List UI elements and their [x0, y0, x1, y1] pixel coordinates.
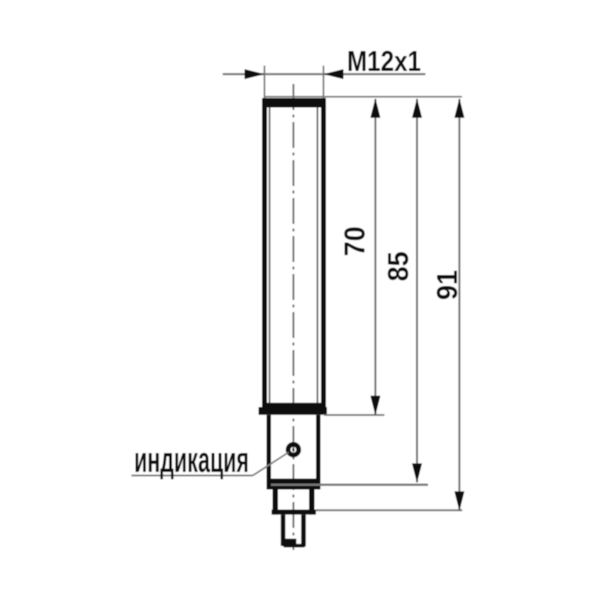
svg-text:85: 85: [383, 251, 415, 281]
svg-text:70: 70: [339, 226, 371, 256]
svg-text:91: 91: [432, 270, 464, 300]
svg-text:индикация: индикация: [134, 439, 249, 480]
svg-text:M12x1: M12x1: [347, 46, 421, 78]
